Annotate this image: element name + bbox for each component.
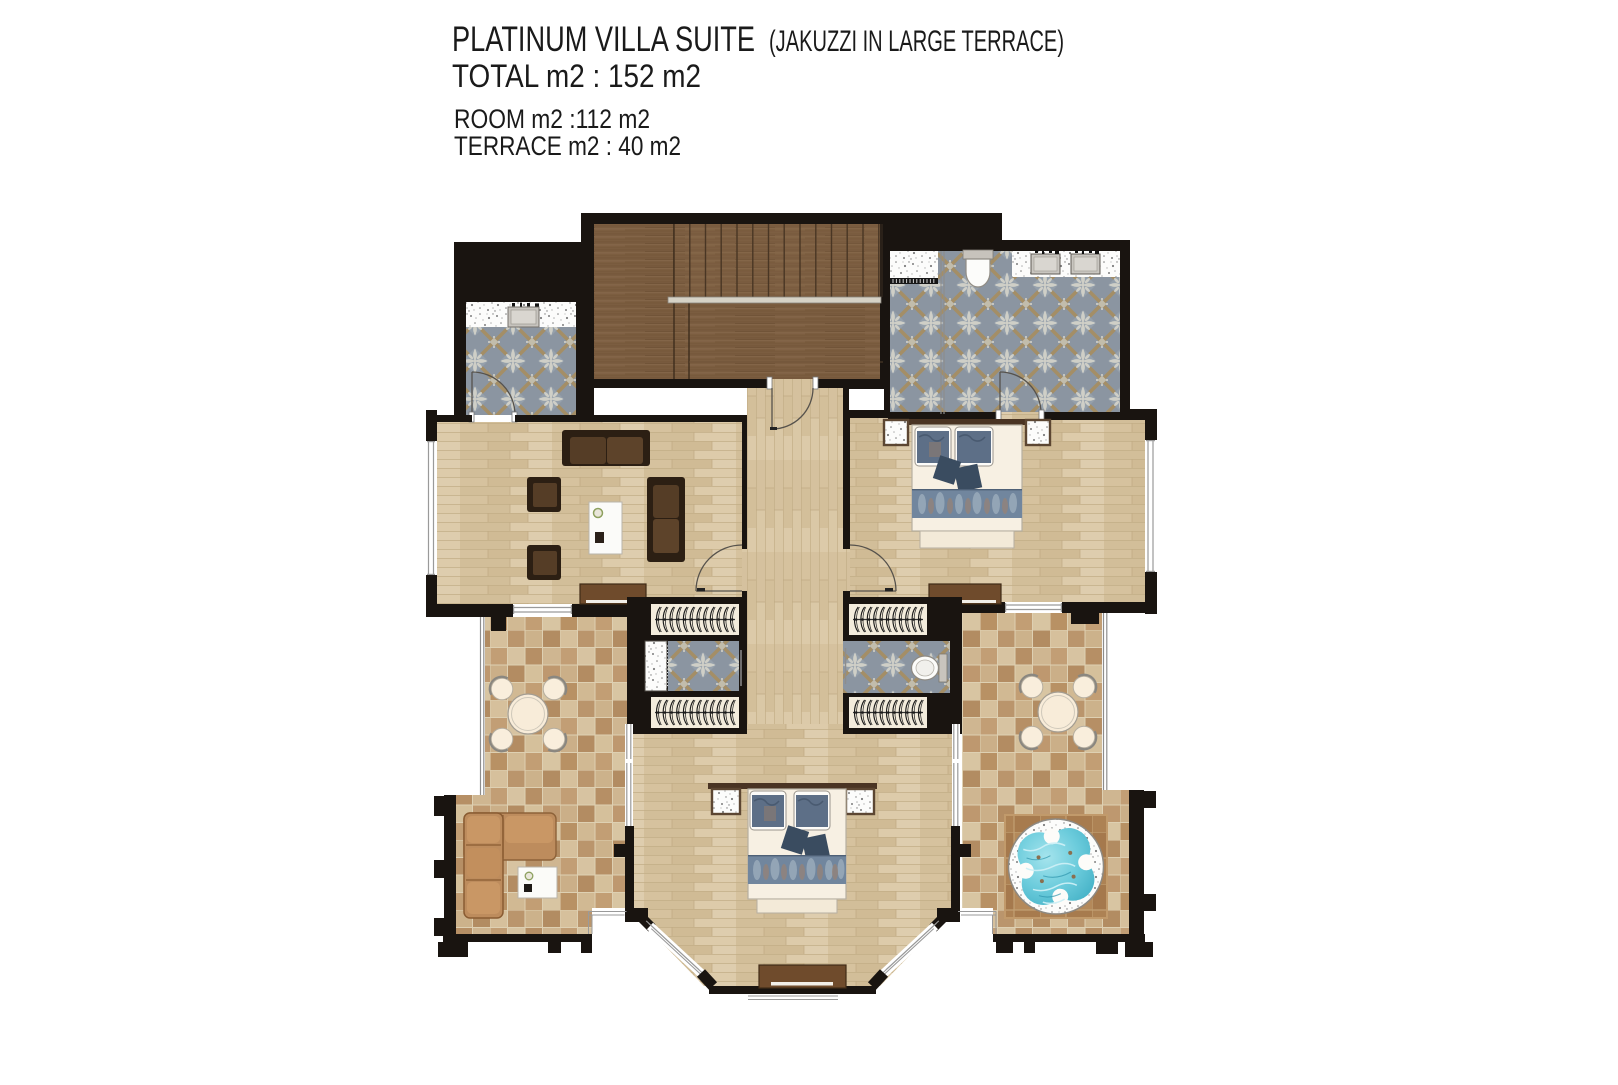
svg-text:PLATINUM VILLA SUITE: PLATINUM VILLA SUITE — [452, 20, 755, 59]
svg-text:TERRACE m2 : 40 m2: TERRACE m2 : 40 m2 — [454, 131, 681, 161]
svg-text:ROOM m2 :112 m2: ROOM m2 :112 m2 — [454, 104, 650, 134]
svg-text:(JAKUZZI IN LARGE TERRACE): (JAKUZZI IN LARGE TERRACE) — [769, 25, 1064, 58]
svg-text:TOTAL m2 : 152 m2: TOTAL m2 : 152 m2 — [452, 58, 701, 94]
